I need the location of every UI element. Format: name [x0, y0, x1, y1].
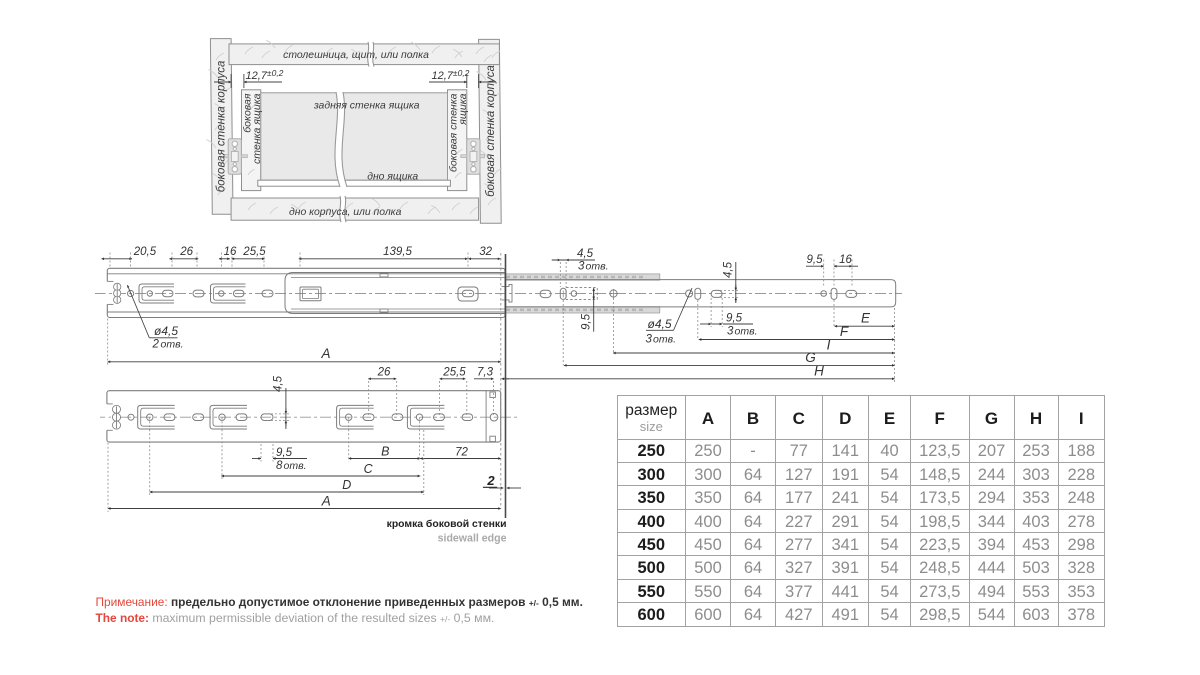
svg-text:3: 3 — [727, 326, 734, 338]
svg-text:9,5: 9,5 — [726, 313, 743, 325]
svg-text:9,5: 9,5 — [581, 313, 593, 330]
svg-text:16: 16 — [839, 254, 852, 266]
svg-text:дно ящика: дно ящика — [367, 172, 418, 183]
svg-text:3: 3 — [646, 333, 653, 345]
svg-text:9,5: 9,5 — [807, 254, 824, 266]
svg-text:ø4,5: ø4,5 — [154, 324, 178, 338]
svg-text:26: 26 — [377, 366, 391, 378]
svg-text:столешница, щит, или полка: столешница, щит, или полка — [283, 50, 429, 61]
svg-text:дно корпуса, или полка: дно корпуса, или полка — [289, 207, 402, 218]
svg-text:2: 2 — [486, 473, 495, 488]
svg-text:16: 16 — [224, 246, 237, 258]
svg-text:H: H — [814, 363, 824, 378]
svg-text:26: 26 — [179, 246, 193, 258]
svg-text:4,5: 4,5 — [723, 261, 735, 278]
svg-text:20,5: 20,5 — [133, 246, 157, 258]
svg-text:отв.: отв. — [735, 326, 758, 338]
svg-text:отв.: отв. — [653, 333, 676, 345]
svg-text:sidewall edge: sidewall edge — [438, 533, 507, 545]
svg-text:F: F — [840, 324, 849, 339]
svg-text:стенка ящика: стенка ящика — [251, 93, 263, 164]
svg-text:4,5: 4,5 — [577, 248, 594, 260]
svg-text:I: I — [827, 337, 831, 352]
svg-text:боковая стенка корпуса: боковая стенка корпуса — [485, 65, 497, 197]
svg-text:2: 2 — [152, 339, 160, 351]
svg-text:4,5: 4,5 — [273, 375, 285, 392]
svg-text:C: C — [364, 462, 374, 476]
svg-text:7,3: 7,3 — [477, 366, 494, 378]
svg-text:32: 32 — [479, 246, 492, 258]
svg-text:отв.: отв. — [161, 339, 184, 351]
svg-text:боковая стенка корпуса: боковая стенка корпуса — [216, 61, 228, 193]
svg-text:ø4,5: ø4,5 — [647, 317, 671, 331]
svg-text:отв.: отв. — [586, 261, 609, 273]
svg-text:D: D — [342, 478, 351, 492]
svg-text:отв.: отв. — [284, 460, 307, 472]
svg-text:A: A — [320, 346, 330, 361]
svg-text:B: B — [381, 445, 389, 459]
svg-text:кромка боковой стенки: кромка боковой стенки — [387, 518, 507, 530]
svg-text:E: E — [861, 311, 871, 326]
svg-text:8: 8 — [276, 460, 283, 472]
svg-text:A: A — [321, 494, 331, 509]
svg-text:задняя стенка ящика: задняя стенка ящика — [313, 101, 420, 112]
svg-text:139,5: 139,5 — [383, 246, 412, 258]
svg-text:ящика: ящика — [457, 93, 469, 125]
svg-text:25,5: 25,5 — [442, 366, 466, 378]
svg-text:25,5: 25,5 — [242, 246, 266, 258]
svg-text:3: 3 — [578, 261, 585, 273]
svg-text:9,5: 9,5 — [276, 447, 293, 459]
svg-text:72: 72 — [455, 447, 468, 459]
